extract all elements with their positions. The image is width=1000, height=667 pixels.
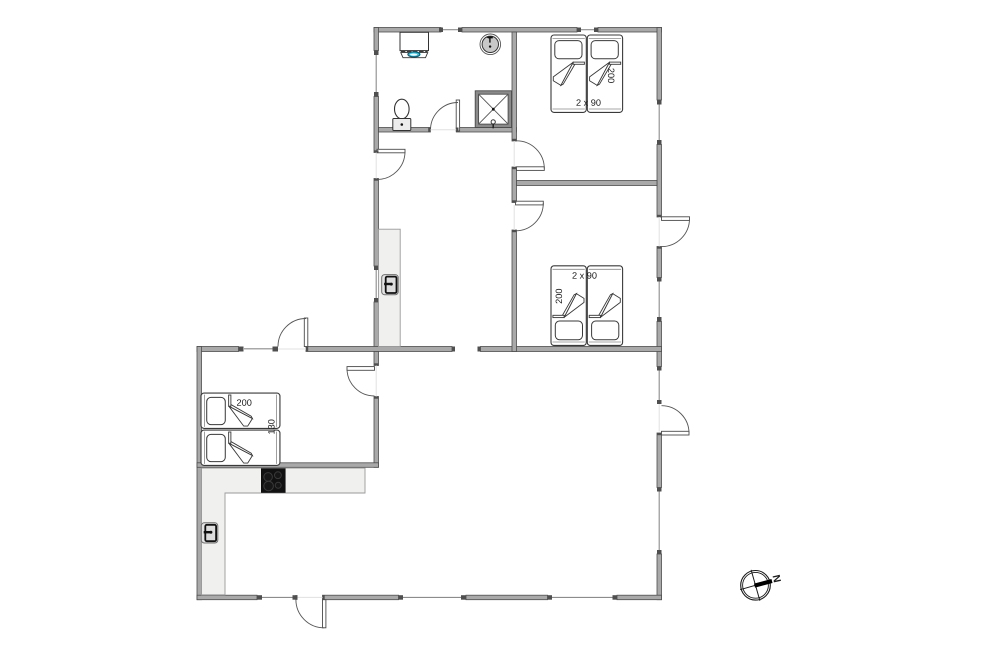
- svg-text:130: 130: [267, 419, 277, 434]
- svg-text:2 x 90: 2 x 90: [576, 98, 601, 108]
- svg-text:200: 200: [554, 289, 564, 304]
- svg-text:200: 200: [606, 68, 616, 83]
- svg-text:200: 200: [237, 398, 252, 408]
- svg-text:2 x 90: 2 x 90: [572, 271, 597, 281]
